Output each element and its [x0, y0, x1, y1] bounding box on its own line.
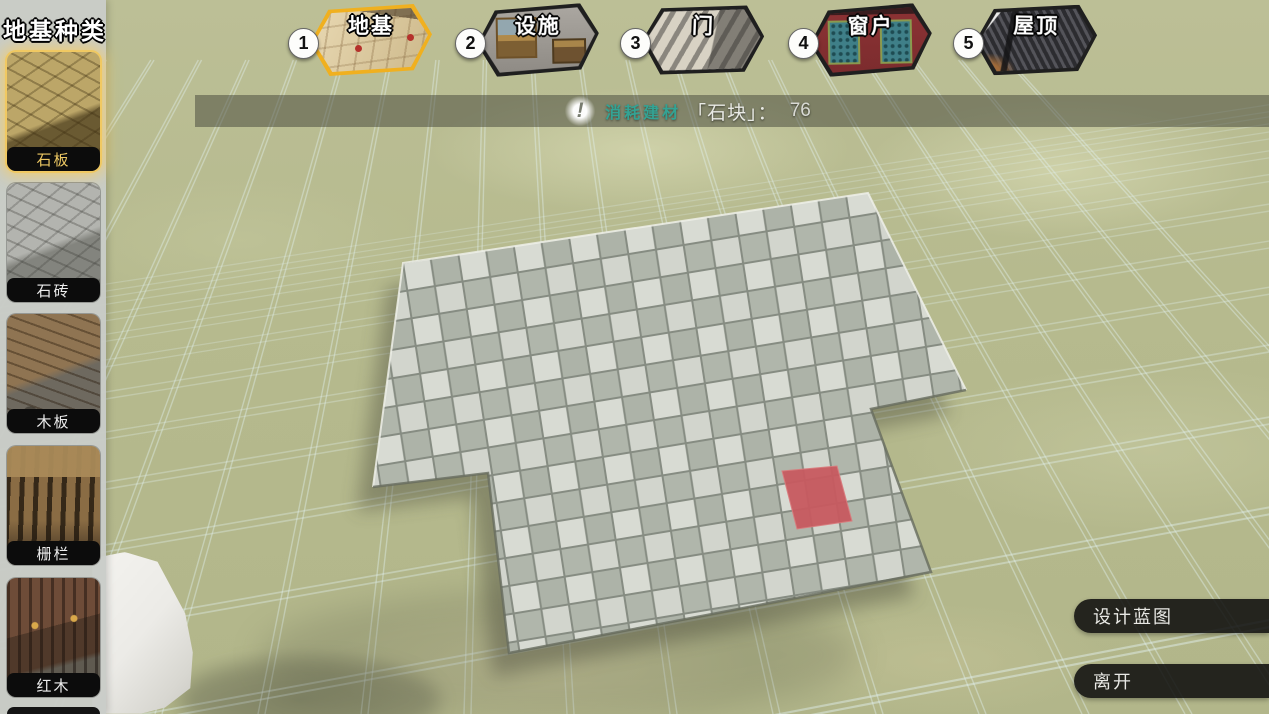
- tab-label: 地基: [314, 10, 428, 40]
- tab-roof[interactable]: 屋顶 5: [959, 2, 1101, 82]
- doors-tab-art: 门: [645, 6, 761, 74]
- tab-hexagon: 地基: [310, 4, 432, 76]
- build-mode-screen: 地基种类 石板 石砖 木板 栅栏 红木 地基 1 设施: [0, 0, 1269, 714]
- tab-facilities[interactable]: 设施 2: [461, 2, 603, 82]
- tab-hexagon: 屋顶: [974, 3, 1097, 77]
- tab-hexagon: 设施: [476, 3, 599, 77]
- cost-prefix-text: 消耗建材: [605, 99, 681, 123]
- foundation-item-muban[interactable]: 木板: [7, 314, 100, 433]
- tab-label: 设施: [480, 9, 595, 41]
- tab-label: 屋顶: [979, 9, 1094, 41]
- marker-dot-icon: [355, 45, 362, 52]
- tab-doors[interactable]: 门 3: [626, 2, 768, 82]
- tab-number-badge: 3: [620, 28, 651, 59]
- foundation-item-shanlan[interactable]: 栅栏: [7, 446, 100, 565]
- foundation-item-label: 木板: [7, 409, 100, 433]
- material-name-text: 「石块」：: [687, 98, 778, 125]
- tab-label: 门: [646, 8, 761, 42]
- facilities-tab-art: 设施: [480, 7, 595, 73]
- foundation-item-shizhuan[interactable]: 石砖: [7, 183, 100, 302]
- foundation-tab-art: 地基: [314, 8, 428, 72]
- leave-button[interactable]: 离开: [1074, 664, 1269, 698]
- tab-number-badge: 4: [788, 28, 819, 59]
- windows-tab-art: 窗户: [813, 7, 928, 73]
- material-count: 76: [790, 100, 811, 122]
- foundation-item-partial[interactable]: [7, 707, 100, 714]
- tab-number-badge: 1: [288, 28, 319, 59]
- tab-label: 窗户: [813, 9, 928, 41]
- design-blueprint-button[interactable]: 设计蓝图: [1074, 599, 1269, 633]
- material-cost-content: ! 消耗建材 「石块」： 76: [565, 96, 811, 126]
- cabinet-art: [552, 38, 587, 64]
- tab-foundation[interactable]: 地基 1: [294, 2, 436, 82]
- tab-windows[interactable]: 窗户 4: [794, 2, 936, 82]
- foundation-item-label: 石板: [7, 147, 100, 171]
- foundation-item-shiban[interactable]: 石板: [7, 52, 100, 171]
- tab-number-badge: 5: [953, 28, 984, 59]
- exclamation-icon: !: [565, 96, 595, 126]
- foundation-item-label: 石砖: [7, 278, 100, 302]
- tab-hexagon: 门: [641, 2, 765, 78]
- foundation-item-label: 栅栏: [7, 541, 100, 565]
- foundation-item-label: 红木: [7, 673, 100, 697]
- sidebar-title: 地基种类: [3, 12, 107, 46]
- material-cost-banner: ! 消耗建材 「石块」： 76: [195, 95, 1269, 127]
- tab-number-badge: 2: [455, 28, 486, 59]
- roof-tab-art: 屋顶: [978, 7, 1093, 73]
- foundation-item-hongmu[interactable]: 红木: [7, 578, 100, 697]
- tab-hexagon: 窗户: [809, 3, 932, 77]
